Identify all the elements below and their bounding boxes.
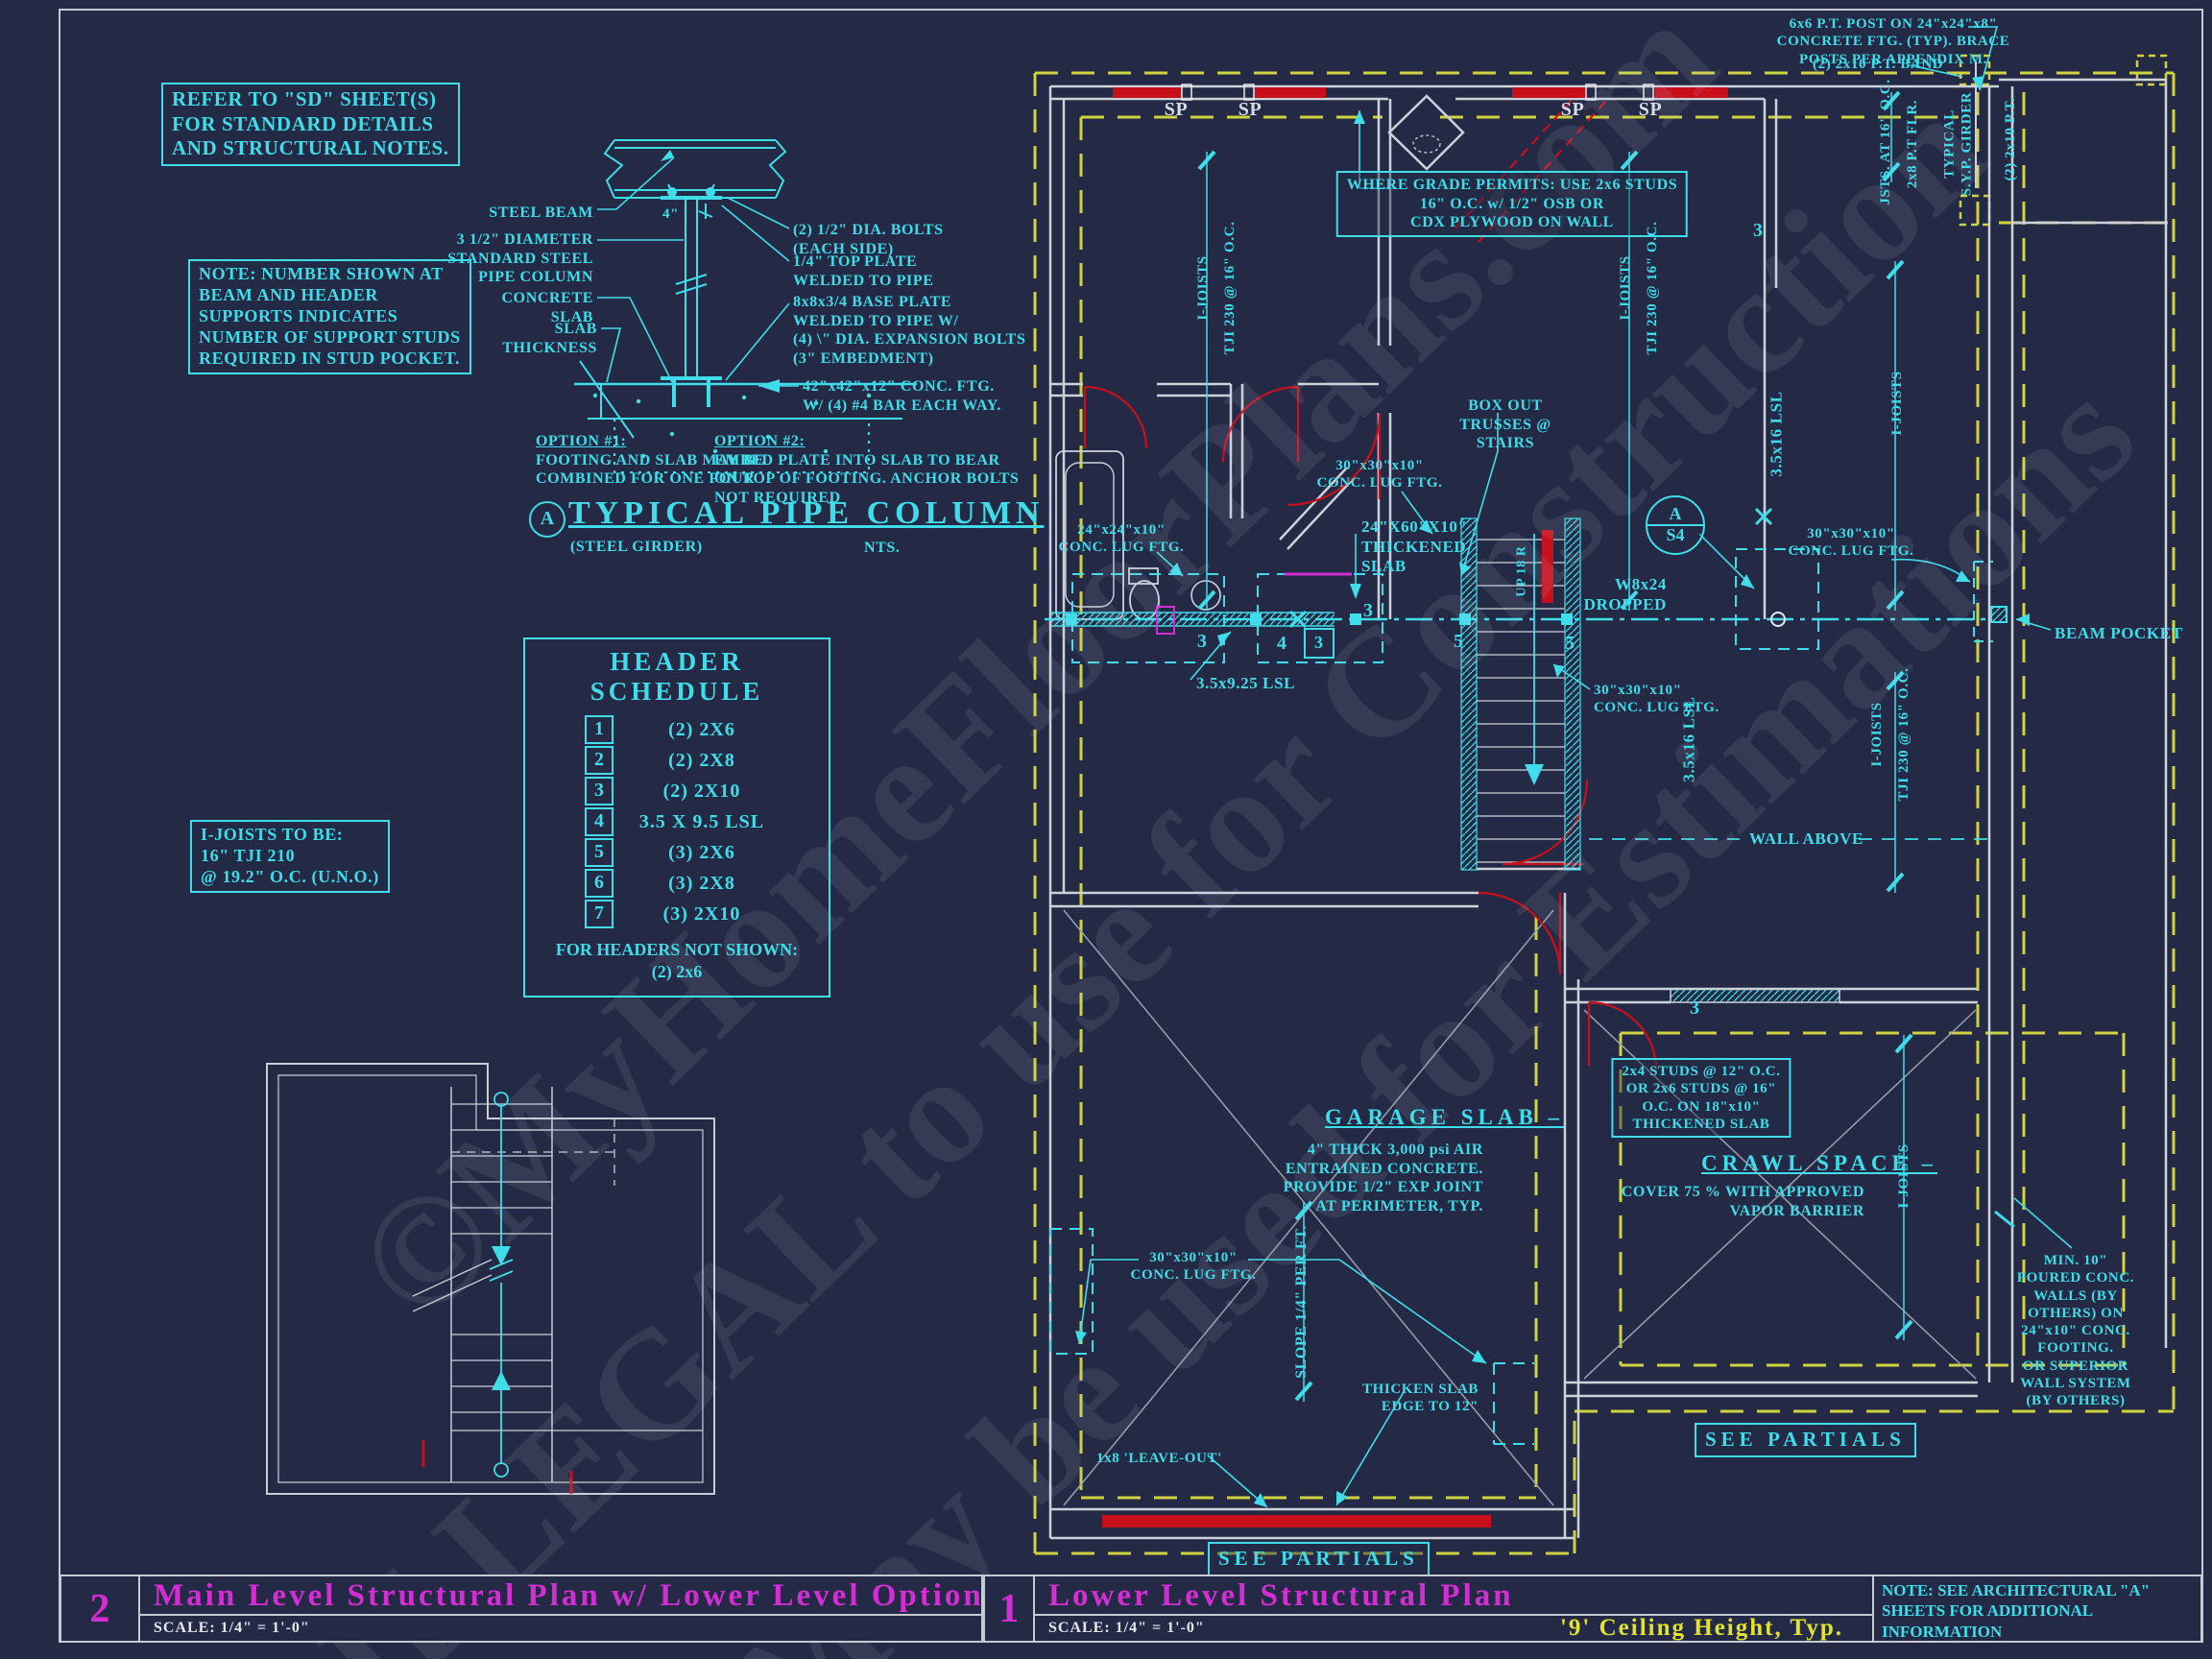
marker-3-boxed: 3 [1304, 628, 1334, 659]
detail-subtitle: (STEEL GIRDER) [570, 538, 703, 557]
header-schedule-row: 3(2) 2X10 [525, 776, 829, 806]
footing-callout: 42"x42"x12" CONC. FTG. W/ (4) #4 BAR EAC… [803, 377, 1001, 415]
tji-top-left: TJI 230 @ 16" O.C. [1221, 222, 1238, 355]
sp-label-4: SP [1639, 98, 1663, 121]
beam-pocket-label: BEAM POCKET [2055, 624, 2183, 644]
w8x24-label: W8x24 DROPPED [1584, 575, 1667, 614]
section-bubble-top: A [1647, 505, 1703, 524]
sp-label-2: SP [1238, 98, 1262, 121]
section-bubble-bottom: S4 [1647, 524, 1703, 545]
thicken-slab-note: THICKEN SLAB EDGE TO 12" [1362, 1381, 1479, 1416]
section-bubble: A S4 [1646, 495, 1705, 555]
up-18r-label: UP 18 R [1513, 545, 1529, 596]
sheet1-title: Lower Level Structural Plan [1035, 1576, 1872, 1614]
steel-beam-label: STEEL BEAM [489, 204, 593, 223]
header-schedule-rows: 1(2) 2X62(2) 2X83(2) 2X1043.5 X 9.5 LSL5… [525, 714, 829, 929]
see-partials-garage: SEE PARTIALS [1208, 1542, 1430, 1576]
detail-nts: NTS. [864, 539, 901, 558]
detail-title: TYPICAL PIPE COLUMN [568, 493, 1044, 533]
lsl-316-bot: 3.5x16 LSL [1680, 696, 1700, 781]
min10-wall-note: MIN. 10" POURED CONC. WALLS (BY OTHERS) … [2017, 1252, 2134, 1410]
crawl-ijoists: I-JOISTS [1895, 1143, 1912, 1208]
ijoists-top-left: I-JOISTS [1194, 255, 1212, 320]
slab-thickness-label: SLAB THICKNESS [502, 320, 597, 357]
grade-permits-note: WHERE GRADE PERMITS: USE 2x6 STUDS 16" O… [1336, 171, 1688, 237]
marker-5-b: 5 [1565, 632, 1575, 655]
sheet1-scale: SCALE: 1/4" = 1'-0" [1048, 1620, 1205, 1637]
sheet2-title: Main Level Structural Plan w/ Lower Leve… [140, 1576, 981, 1614]
ijoists-bot-right: I-JOISTS [1868, 702, 1886, 766]
architectural-note: NOTE: SEE ARCHITECTURAL "A" SHEETS FOR A… [1872, 1576, 2200, 1641]
header-schedule-row: 2(2) 2X8 [525, 745, 829, 776]
wall-above-label: WALL ABOVE [1749, 829, 1863, 850]
marker-4: 4 [1277, 632, 1287, 655]
lug-30-top: 30"x30"x10" CONC. LUG FTG. [1317, 457, 1443, 493]
garage-slab-title: GARAGE SLAB – [1325, 1104, 1564, 1131]
sheet-number-1: 1 [983, 1576, 1035, 1641]
sp-label-1: SP [1165, 98, 1189, 121]
pt-band-note: (2) 2x10 P.T. BAND [1813, 56, 1943, 73]
studs-note: 2x4 STUDS @ 12" O.C. OR 2x6 STUDS @ 16" … [1611, 1058, 1791, 1138]
sp-label-3: SP [1561, 98, 1585, 121]
sheet2-scale: SCALE: 1/4" = 1'-0" [154, 1620, 310, 1637]
box-out-note: BOX OUT TRUSSES @ STAIRS [1459, 397, 1551, 453]
detail-bubble-letter: A [541, 508, 554, 529]
ceiling-height-note: '9' Ceiling Height, Typ. [1560, 1615, 1872, 1642]
dim-4in: 4" [662, 205, 679, 223]
marker-3-deck: 3 [1753, 219, 1764, 242]
tji-bot-right: TJI 230 @ 16" O.C. [1895, 668, 1912, 802]
header-schedule: HEADER SCHEDULE 1(2) 2X62(2) 2X83(2) 2X1… [523, 637, 830, 998]
slope-label: SLOPE 1/4" PER FT. [1292, 1225, 1311, 1379]
ijoists-right: I-JOISTS [1888, 371, 1906, 435]
lug-30-mid: 30"x30"x10" CONC. LUG FTG. [1594, 682, 1719, 717]
base-plate-callout: 8x8x3/4 BASE PLATE WELDED TO PIPE W/ (4)… [793, 293, 1025, 368]
syp-girder-label: TYPICAL S.Y.P. GIRDER [1941, 92, 1977, 196]
marker-3-beam: 3 [1363, 599, 1374, 622]
ijoist-note: I-JOISTS TO BE: 16" TJI 210 @ 19.2" O.C.… [190, 820, 390, 893]
marker-5-a: 5 [1454, 630, 1464, 653]
top-plate-callout: 1/4" TOP PLATE WELDED TO PIPE [793, 252, 934, 290]
see-partials-crawl: SEE PARTIALS [1695, 1423, 1916, 1457]
ijoists-top-right: I-JOISTS [1617, 255, 1634, 320]
header-schedule-row: 7(3) 2X10 [525, 899, 829, 929]
lsl-316-right: 3.5x16 LSL [1767, 391, 1788, 476]
lsl-35x925: 3.5x9.25 LSL [1196, 674, 1295, 694]
title-bar: 2 Main Level Structural Plan w/ Lower Le… [60, 1575, 2202, 1643]
header-schedule-row: 1(2) 2X6 [525, 714, 829, 745]
pt-floor-label: 2x8 P.T FLR. [1904, 100, 1921, 188]
lug-30-garage: 30"x30"x10" CONC. LUG FTG. [1131, 1249, 1257, 1285]
header-schedule-title: HEADER SCHEDULE [525, 647, 829, 707]
crawl-space-body: COVER 75 % WITH APPROVED VAPOR BARRIER [1622, 1183, 1864, 1220]
lug-24: 24"x24"x10" CONC. LUG FTG. [1059, 521, 1185, 557]
refer-sd-note: REFER TO "SD" SHEET(S) FOR STANDARD DETA… [161, 83, 460, 166]
tji-top-right: TJI 230 @ 16" O.C. [1644, 222, 1661, 355]
garage-slab-body: 4" THICK 3,000 psi AIR ENTRAINED CONCRET… [1284, 1141, 1483, 1215]
detail-bubble: A [529, 501, 565, 538]
marker-3-a: 3 [1197, 630, 1208, 653]
pt-2x10-label: (2) 2x10 P.T. [2002, 98, 2019, 181]
header-schedule-footer: FOR HEADERS NOT SHOWN: (2) 2x6 [525, 939, 829, 984]
header-schedule-row: 43.5 X 9.5 LSL [525, 806, 829, 837]
header-schedule-row: 6(3) 2X8 [525, 868, 829, 899]
thickened-slab-note: 24"X60"X10" THICKENED SLAB [1361, 517, 1467, 577]
jsts-16-label: JSTS. AT 16" O.C. [1877, 79, 1894, 204]
leave-out-note: 1x8 'LEAVE-OUT' [1096, 1450, 1222, 1467]
drawing-sheet: ©MyHomeFloorPlans.com ILLEGAL to use for… [0, 0, 2212, 1659]
pipe-column-label: 3 1/2" DIAMETER STANDARD STEEL PIPE COLU… [447, 230, 593, 287]
sheet-number-2: 2 [61, 1576, 140, 1641]
marker-3-crawl: 3 [1690, 997, 1700, 1020]
lug-30-right: 30"x30"x10" CONC. LUG FTG. [1789, 525, 1914, 561]
stud-pocket-note: NOTE: NUMBER SHOWN AT BEAM AND HEADER SU… [188, 259, 471, 374]
header-schedule-row: 5(3) 2X6 [525, 837, 829, 868]
